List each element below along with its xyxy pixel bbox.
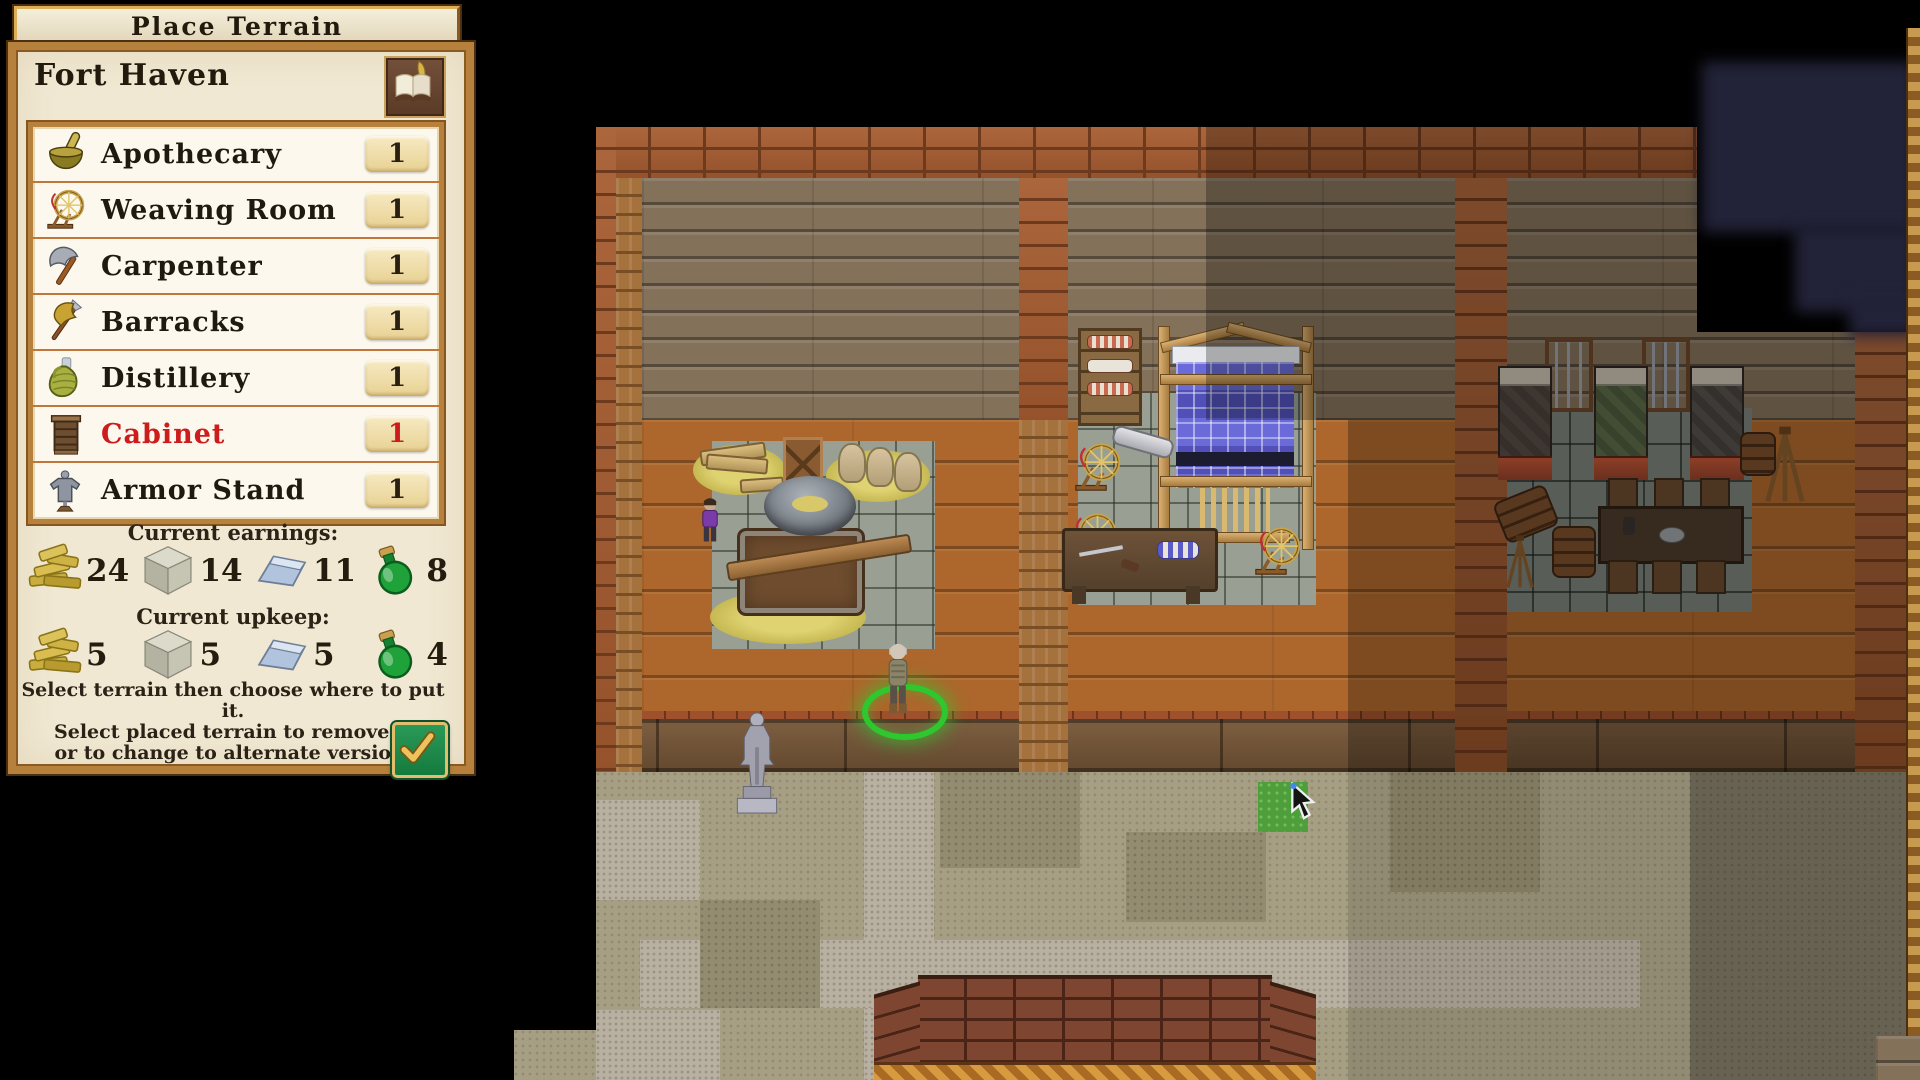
instruction-line-1: Select terrain then choose where to put … xyxy=(16,680,450,722)
armor-stand-icon xyxy=(43,467,89,513)
list-item-distillery[interactable]: Distillery 1 xyxy=(33,351,439,407)
book-icon xyxy=(386,58,440,112)
panel-title: Place Terrain xyxy=(131,12,343,41)
potion-icon xyxy=(366,626,424,684)
pillar-wood-1 xyxy=(1019,420,1068,772)
pillar-brick-1 xyxy=(1019,178,1068,420)
location-name: Fort Haven xyxy=(34,58,230,93)
instruction-line-3: or to change to alternate version. xyxy=(16,743,450,764)
item-count-badge: 1 xyxy=(365,192,429,228)
item-label: Cabinet xyxy=(101,419,365,450)
metal-ingot-icon xyxy=(253,626,311,684)
item-label: Armor Stand xyxy=(101,475,365,506)
item-count-badge: 1 xyxy=(365,416,429,452)
wood-icon xyxy=(26,542,84,600)
fog-block-1 xyxy=(1702,62,1916,232)
earnings-stone-value: 14 xyxy=(199,553,242,589)
halberd-icon xyxy=(43,299,89,345)
place-terrain-panel: Fort Haven Apothecary 1 Weaving Room 1 C… xyxy=(8,42,474,774)
knight-statue[interactable] xyxy=(733,708,781,816)
shadow-overlay-ground xyxy=(1348,772,1690,1080)
building-left-wood-column xyxy=(616,178,642,772)
selected-character[interactable] xyxy=(878,640,918,728)
ground-gravel-edge[interactable] xyxy=(514,1030,596,1080)
shadow-overlay-corner xyxy=(1690,772,1920,1080)
item-count-badge: 1 xyxy=(365,248,429,284)
earnings-metal-value: 11 xyxy=(313,553,356,589)
potion-icon xyxy=(366,542,424,600)
stone-icon xyxy=(139,542,197,600)
upkeep-stone: 5 xyxy=(139,626,221,684)
mallet xyxy=(1120,558,1140,573)
weaving-table-legs xyxy=(1072,586,1086,604)
item-label: Carpenter xyxy=(101,251,365,282)
upkeep-metal-value: 5 xyxy=(313,637,335,673)
corner-wood-block xyxy=(1876,1036,1920,1080)
earnings-wood-value: 24 xyxy=(86,553,129,589)
list-item-carpenter[interactable]: Carpenter 1 xyxy=(33,239,439,295)
item-count-badge: 1 xyxy=(365,360,429,396)
list-item-barracks[interactable]: Barracks 1 xyxy=(33,295,439,351)
wicker-jug-icon xyxy=(43,355,89,401)
axe-icon xyxy=(43,243,89,289)
earnings-wood: 24 xyxy=(26,542,129,600)
fabric-roll-1 xyxy=(1087,335,1133,349)
spinning-wheel-1[interactable] xyxy=(1070,440,1126,496)
gravel-dark-2[interactable] xyxy=(1126,832,1266,922)
grain-sack-2[interactable] xyxy=(866,447,894,487)
weaving-table-legs-2 xyxy=(1186,586,1200,604)
loom-cloth-shadow xyxy=(1176,452,1294,466)
building-left-wall xyxy=(596,127,616,772)
mill-grain xyxy=(792,496,828,512)
lower-building-trim xyxy=(874,1062,1316,1080)
upkeep-potion-value: 4 xyxy=(426,637,448,673)
lower-building-wall xyxy=(918,975,1272,1071)
mouse-cursor-icon xyxy=(1290,782,1320,822)
gravel-dark-3[interactable] xyxy=(700,900,820,1008)
spinning-wheel-icon xyxy=(43,187,89,233)
grain-sack-1[interactable] xyxy=(838,443,866,483)
instructions-text: Select terrain then choose where to put … xyxy=(16,680,450,764)
loom-crossbar-2 xyxy=(1160,476,1312,487)
fabric-roll-blue xyxy=(1157,541,1199,559)
gravel-patch-1[interactable] xyxy=(596,800,700,900)
metal-ingot-icon xyxy=(253,542,311,600)
apothecary-worker[interactable] xyxy=(696,496,724,558)
upkeep-metal: 5 xyxy=(253,626,335,684)
building-list: Apothecary 1 Weaving Room 1 Carpenter 1 … xyxy=(28,122,444,524)
item-count-badge: 1 xyxy=(365,472,429,508)
fabric-roll-2 xyxy=(1087,359,1133,373)
item-count-badge: 1 xyxy=(365,136,429,172)
upkeep-stone-value: 5 xyxy=(199,637,221,673)
earnings-stone: 14 xyxy=(139,542,242,600)
map-frame-right-edge xyxy=(1906,28,1920,1080)
weaving-work-table[interactable] xyxy=(1062,528,1218,592)
checkmark-icon xyxy=(395,725,439,769)
item-count-badge: 1 xyxy=(365,304,429,340)
fabric-shelf[interactable] xyxy=(1078,328,1142,426)
spinning-wheel-3[interactable] xyxy=(1250,524,1306,580)
upkeep-row: 5 5 5 4 xyxy=(22,626,452,684)
earnings-potion-value: 8 xyxy=(426,553,448,589)
upkeep-potion: 4 xyxy=(366,626,448,684)
earnings-row: 24 14 11 8 xyxy=(22,542,452,600)
instruction-line-2: Select placed terrain to remove it xyxy=(16,722,450,743)
upkeep-wood-value: 5 xyxy=(86,637,108,673)
earnings-potion: 8 xyxy=(366,542,448,600)
item-label: Apothecary xyxy=(101,139,365,170)
gravel-patch-2[interactable] xyxy=(596,1010,720,1080)
cabinet-icon xyxy=(43,411,89,457)
item-label: Barracks xyxy=(101,307,365,338)
journal-button[interactable] xyxy=(384,56,446,118)
shadow-overlay-floor xyxy=(1348,420,1920,772)
game-screen: Place Terrain Fort Haven Apothecary 1 We… xyxy=(0,0,1920,1080)
list-item-cabinet-selected[interactable]: Cabinet 1 xyxy=(33,407,439,463)
upkeep-wood: 5 xyxy=(26,626,108,684)
gravel-dark-1[interactable] xyxy=(940,772,1080,868)
grain-sack-3[interactable] xyxy=(894,452,922,492)
stone-icon xyxy=(139,626,197,684)
shears xyxy=(1079,545,1123,557)
mortar-pestle-icon xyxy=(43,131,89,177)
list-item-weaving-room[interactable]: Weaving Room 1 xyxy=(33,183,439,239)
item-label: Weaving Room xyxy=(101,195,365,226)
confirm-button[interactable] xyxy=(392,722,448,778)
item-label: Distillery xyxy=(101,363,365,394)
fabric-roll-3 xyxy=(1087,382,1133,396)
panel-title-bar: Place Terrain xyxy=(14,6,460,46)
wood-icon xyxy=(26,626,84,684)
list-item-armor-stand[interactable]: Armor Stand 1 xyxy=(33,463,439,517)
earnings-metal: 11 xyxy=(253,542,356,600)
list-item-apothecary[interactable]: Apothecary 1 xyxy=(33,127,439,183)
